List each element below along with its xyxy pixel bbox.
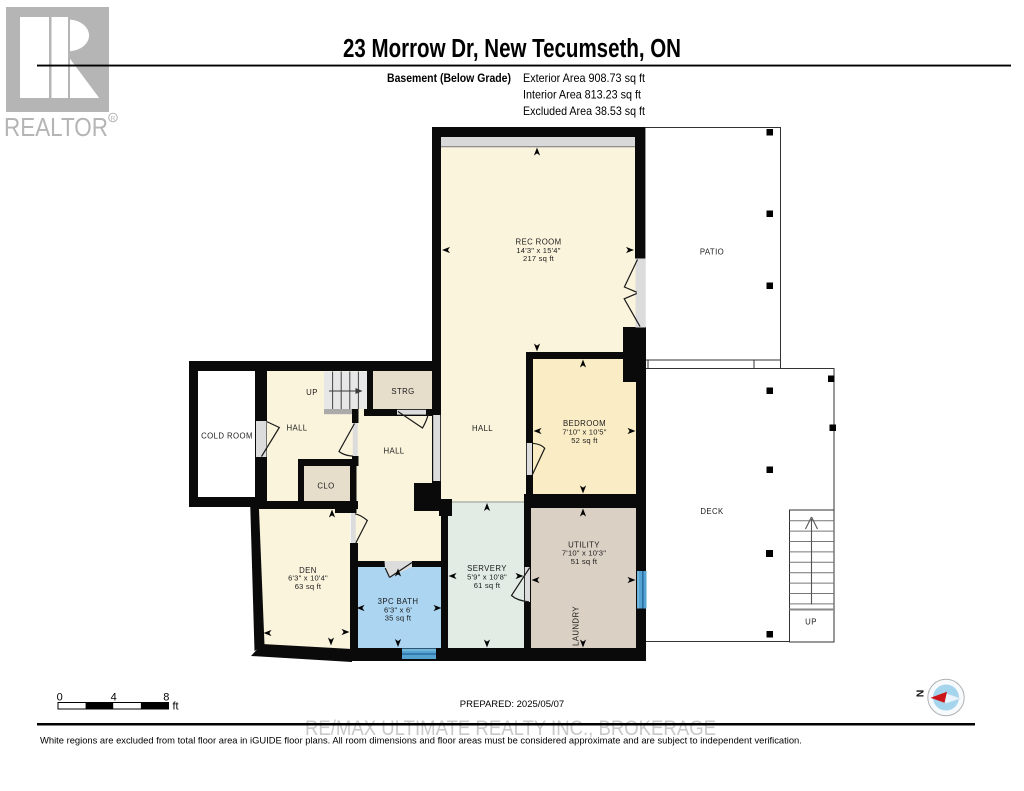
svg-text:4: 4 <box>111 691 117 703</box>
svg-text:DECK: DECK <box>700 507 724 516</box>
svg-text:61 sq ft: 61 sq ft <box>474 581 501 590</box>
svg-text:UP: UP <box>306 388 318 397</box>
svg-text:CLO: CLO <box>317 481 334 490</box>
svg-text:STRG: STRG <box>391 387 414 396</box>
svg-text:Exterior Area 908.73 sq ft: Exterior Area 908.73 sq ft <box>523 72 646 85</box>
svg-text:N: N <box>915 690 927 698</box>
svg-text:REALTOR: REALTOR <box>4 112 108 142</box>
svg-text:HALL: HALL <box>286 423 307 432</box>
svg-text:52 sq ft: 52 sq ft <box>571 436 598 445</box>
svg-text:35 sq ft: 35 sq ft <box>385 613 412 622</box>
svg-text:HALL: HALL <box>472 424 493 433</box>
svg-text:Excluded Area 38.53 sq ft: Excluded Area 38.53 sq ft <box>523 105 646 118</box>
svg-text:LAUNDRY: LAUNDRY <box>571 606 580 646</box>
svg-text:White regions are excluded fro: White regions are excluded from total fl… <box>40 735 802 746</box>
svg-text:8: 8 <box>163 691 169 703</box>
svg-text:Basement (Below Grade): Basement (Below Grade) <box>387 72 511 85</box>
svg-text:UP: UP <box>805 617 817 626</box>
svg-text:PATIO: PATIO <box>700 247 724 256</box>
svg-text:COLD ROOM: COLD ROOM <box>201 432 253 441</box>
svg-text:217 sq ft: 217 sq ft <box>523 254 555 263</box>
svg-text:Interior Area 813.23 sq ft: Interior Area 813.23 sq ft <box>523 89 642 102</box>
svg-text:63 sq ft: 63 sq ft <box>295 582 322 591</box>
svg-text:0: 0 <box>57 691 63 703</box>
svg-text:51 sq ft: 51 sq ft <box>571 557 598 566</box>
svg-text:HALL: HALL <box>383 446 404 455</box>
svg-text:PREPARED: 2025/05/07: PREPARED: 2025/05/07 <box>460 699 564 710</box>
svg-text:ft: ft <box>173 701 179 713</box>
svg-text:R: R <box>111 116 116 123</box>
svg-text:23 Morrow Dr, New Tecumseth, O: 23 Morrow Dr, New Tecumseth, ON <box>343 35 681 63</box>
